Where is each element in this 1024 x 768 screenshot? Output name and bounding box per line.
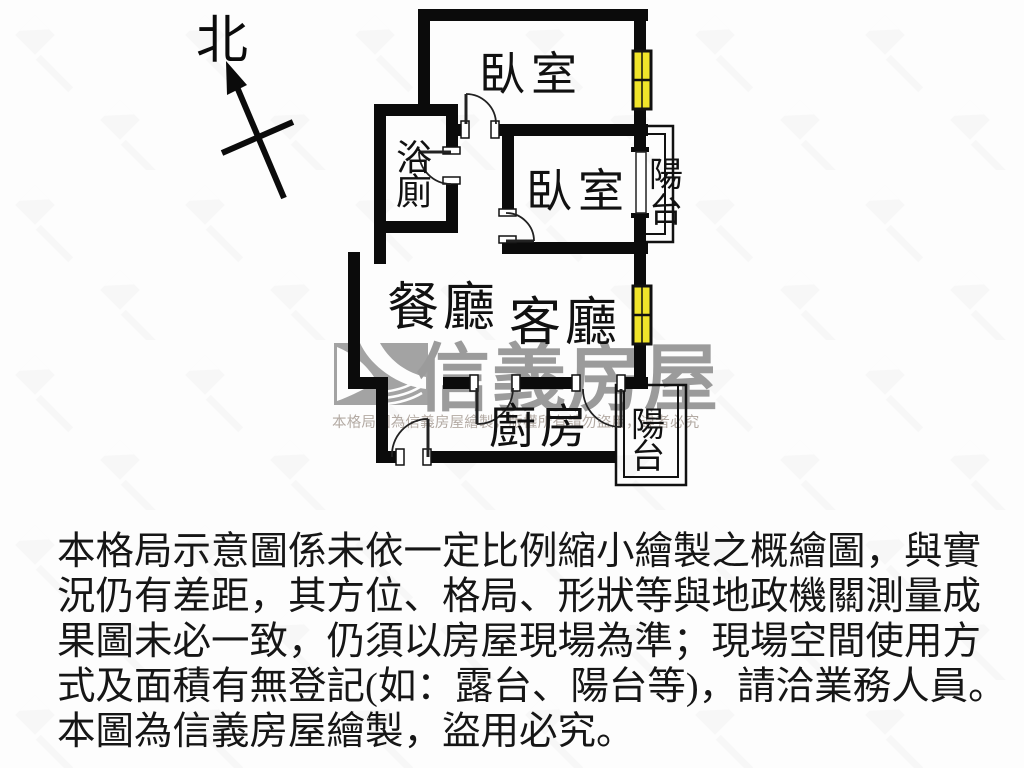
label-bathroom-char2: 廁 — [396, 172, 432, 212]
window-bedroom1 — [633, 51, 651, 109]
label-living: 客廳 — [509, 295, 621, 352]
label-balcony-bottom-char2: 台 — [631, 438, 665, 476]
disclaimer-line-5: 本圖為信義房屋繪製，盜用必究。 — [57, 710, 635, 753]
label-balcony-right-char1: 陽 — [649, 157, 683, 194]
label-dining: 餐廳 — [387, 280, 499, 337]
disclaimer-line-2: 況仍有差距，其方位、格局、形狀等與地政機關測量成 — [57, 575, 981, 618]
label-bedroom2: 臥室 — [526, 166, 630, 217]
label-balcony-right-char2: 台 — [649, 192, 683, 230]
floorplan-page: 信義房屋 本格局圖為信義房屋繪製，版權所有請勿盜用，違者必究 — [0, 0, 1024, 768]
north-label: 北 — [196, 13, 248, 70]
window-livingroom — [633, 286, 651, 344]
disclaimer-line-4: 式及面積有無登記(如：露台、陽台等)，請洽業務人員。 — [57, 665, 1007, 708]
disclaimer-line-1: 本格局示意圖係未依一定比例縮小繪製之概繪圖，與實 — [57, 530, 981, 573]
floorplan-canvas: 信義房屋 本格局圖為信義房屋繪製，版權所有請勿盜用，違者必究 — [0, 0, 1024, 768]
disclaimer-line-3: 果圖未必一致，仍須以房屋現場為準；現場空間使用方 — [57, 620, 981, 663]
label-kitchen: 廚房 — [489, 402, 591, 454]
window-bedroom2-balcony — [636, 152, 646, 213]
label-bedroom1: 臥室 — [479, 49, 583, 100]
